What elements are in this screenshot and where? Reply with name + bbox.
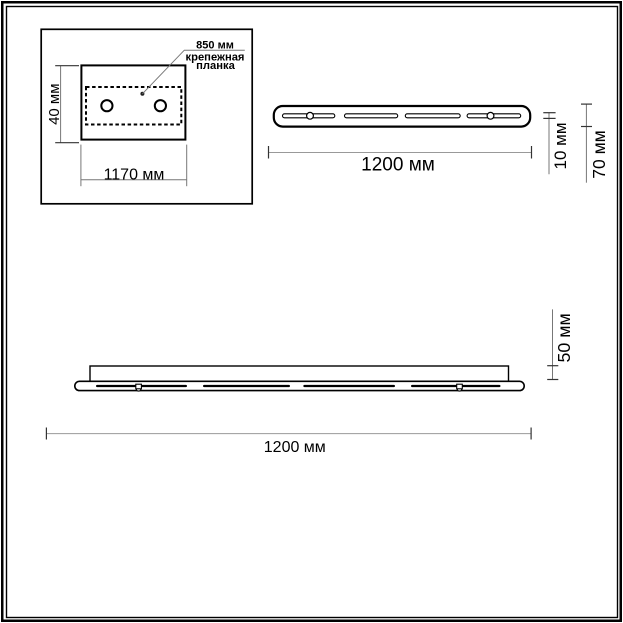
svg-text:50 мм: 50 мм <box>554 313 574 362</box>
svg-text:1170 мм: 1170 мм <box>104 166 165 183</box>
svg-text:70 мм: 70 мм <box>589 130 609 178</box>
svg-text:10 мм: 10 мм <box>551 122 570 169</box>
svg-text:планка: планка <box>196 60 235 72</box>
svg-text:1200 мм: 1200 мм <box>264 439 326 456</box>
svg-text:850 мм: 850 мм <box>196 39 234 51</box>
svg-text:1200 мм: 1200 мм <box>361 155 435 176</box>
svg-text:40 мм: 40 мм <box>46 83 63 124</box>
